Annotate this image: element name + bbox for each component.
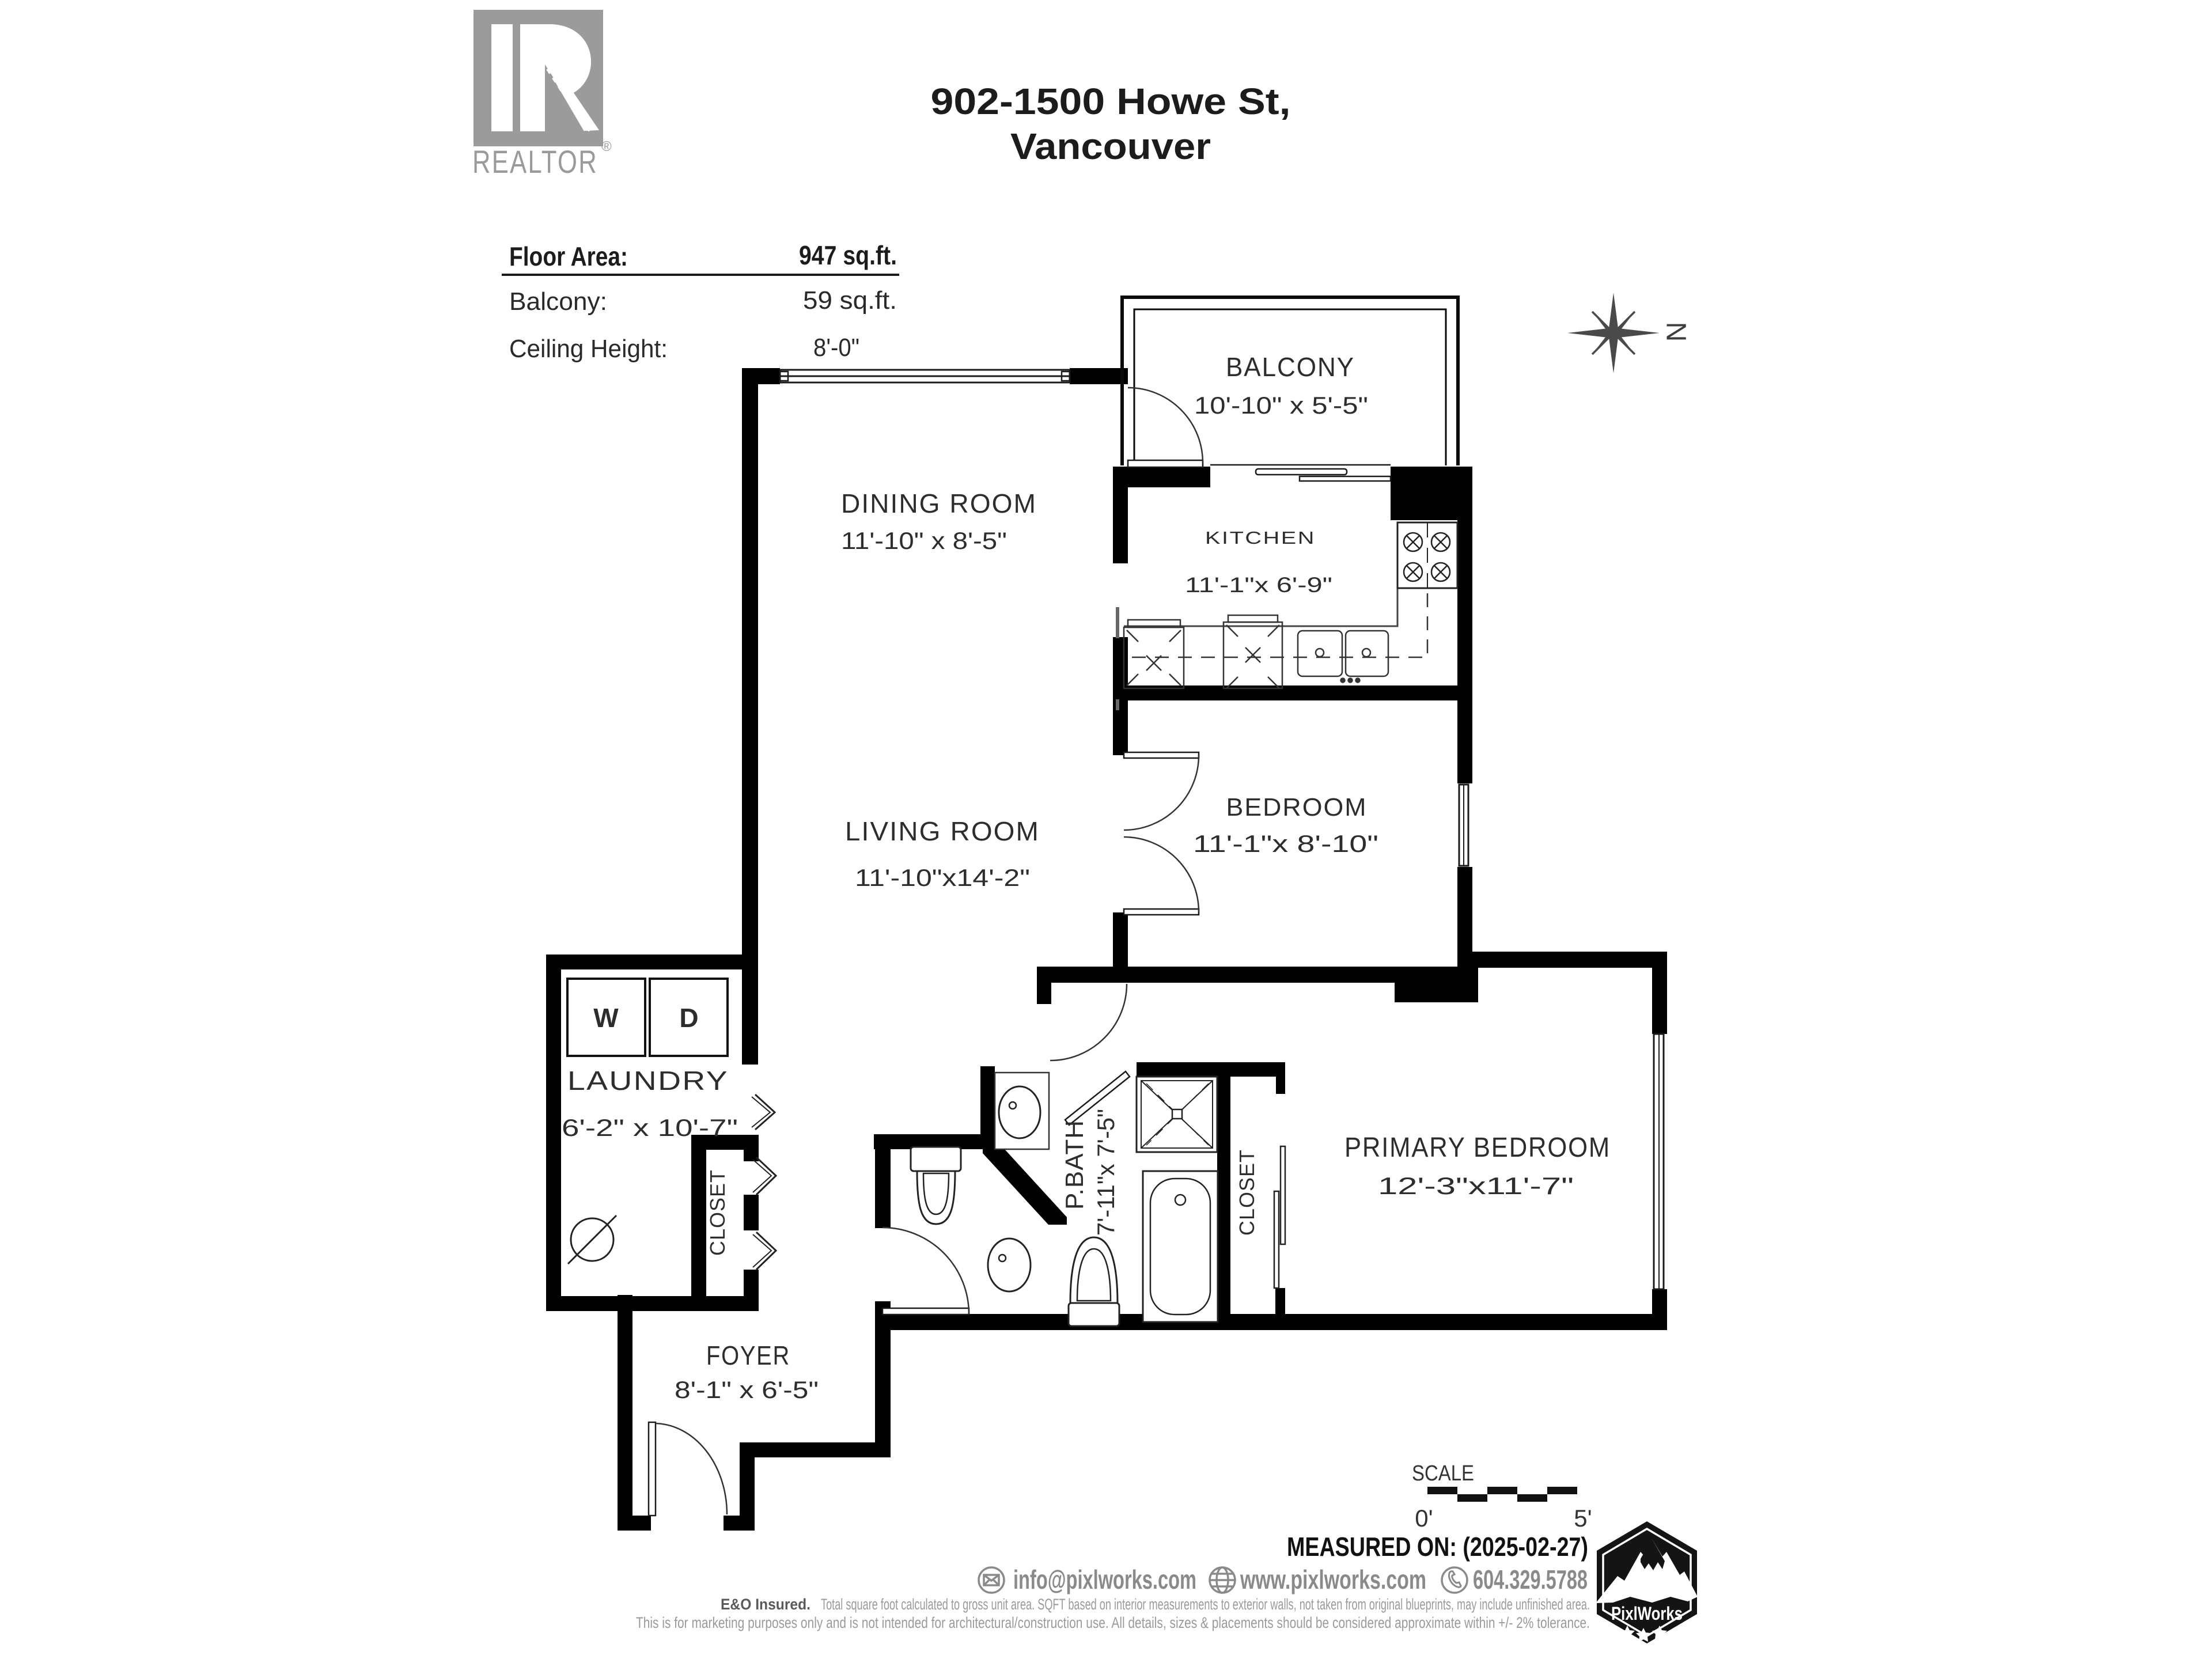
svg-text:BEDROOM: BEDROOM: [1226, 793, 1368, 821]
svg-text:PixlWorks: PixlWorks: [1611, 1603, 1683, 1624]
svg-text:7'-11"x 7'-5": 7'-11"x 7'-5": [1092, 1109, 1119, 1236]
svg-text:0': 0': [1415, 1505, 1433, 1532]
svg-text:11'-10"x14'-2": 11'-10"x14'-2": [855, 864, 1030, 891]
svg-text:11'-1"x 8'-10": 11'-1"x 8'-10": [1193, 830, 1378, 857]
svg-text:604.329.5788: 604.329.5788: [1473, 1565, 1588, 1594]
svg-text:info@pixlworks.com: info@pixlworks.com: [1013, 1565, 1196, 1594]
svg-text:REALTOR: REALTOR: [472, 143, 598, 180]
svg-text:Floor Area:: Floor Area:: [509, 241, 628, 271]
svg-text:Balcony:: Balcony:: [509, 287, 607, 316]
svg-text:11'-1"x 6'-9": 11'-1"x 6'-9": [1185, 573, 1332, 597]
svg-text:This is for marketing purposes: This is for marketing purposes only and …: [636, 1614, 1590, 1631]
svg-text:8'-0": 8'-0": [813, 334, 859, 362]
svg-text:CLOSET: CLOSET: [1235, 1149, 1259, 1236]
svg-text:P.BATH: P.BATH: [1060, 1120, 1089, 1210]
svg-text:W: W: [593, 1003, 619, 1033]
svg-text:E&O Insured.: E&O Insured.: [721, 1596, 810, 1613]
svg-text:LIVING ROOM: LIVING ROOM: [845, 816, 1040, 846]
svg-text:PRIMARY BEDROOM: PRIMARY BEDROOM: [1344, 1132, 1611, 1163]
svg-text:8'-1" x 6'-5": 8'-1" x 6'-5": [675, 1376, 819, 1403]
svg-text:59 sq.ft.: 59 sq.ft.: [803, 286, 897, 315]
svg-text:Total square foot calculated t: Total square foot calculated to gross un…: [821, 1596, 1590, 1613]
svg-text:CLOSET: CLOSET: [706, 1169, 729, 1256]
svg-text:LAUNDRY: LAUNDRY: [567, 1066, 729, 1096]
svg-text:5': 5': [1574, 1505, 1592, 1532]
svg-text:N: N: [1660, 322, 1691, 342]
svg-text:12'-3"x11'-7": 12'-3"x11'-7": [1378, 1172, 1574, 1199]
svg-text:MEASURED ON: (2025-02-27): MEASURED ON: (2025-02-27): [1287, 1532, 1588, 1562]
svg-text:10'-10" x 5'-5": 10'-10" x 5'-5": [1194, 392, 1368, 419]
svg-text:FOYER: FOYER: [706, 1340, 790, 1370]
svg-text:Ceiling Height:: Ceiling Height:: [509, 335, 668, 363]
svg-text:11'-10" x 8'-5": 11'-10" x 8'-5": [841, 527, 1007, 554]
svg-text:www.pixlworks.com: www.pixlworks.com: [1240, 1565, 1426, 1594]
svg-text:DINING ROOM: DINING ROOM: [841, 488, 1037, 518]
svg-text:6'-2" x 10'-7": 6'-2" x 10'-7": [562, 1114, 738, 1141]
svg-text:D: D: [679, 1003, 698, 1033]
svg-text:KITCHEN: KITCHEN: [1205, 528, 1316, 548]
svg-text:BALCONY: BALCONY: [1226, 352, 1355, 382]
svg-text:947 sq.ft.: 947 sq.ft.: [799, 240, 897, 270]
svg-text:Vancouver: Vancouver: [1010, 126, 1211, 167]
svg-text:902-1500 Howe St,: 902-1500 Howe St,: [931, 81, 1291, 122]
svg-text:®: ®: [601, 139, 612, 154]
svg-text:SCALE: SCALE: [1412, 1461, 1474, 1486]
